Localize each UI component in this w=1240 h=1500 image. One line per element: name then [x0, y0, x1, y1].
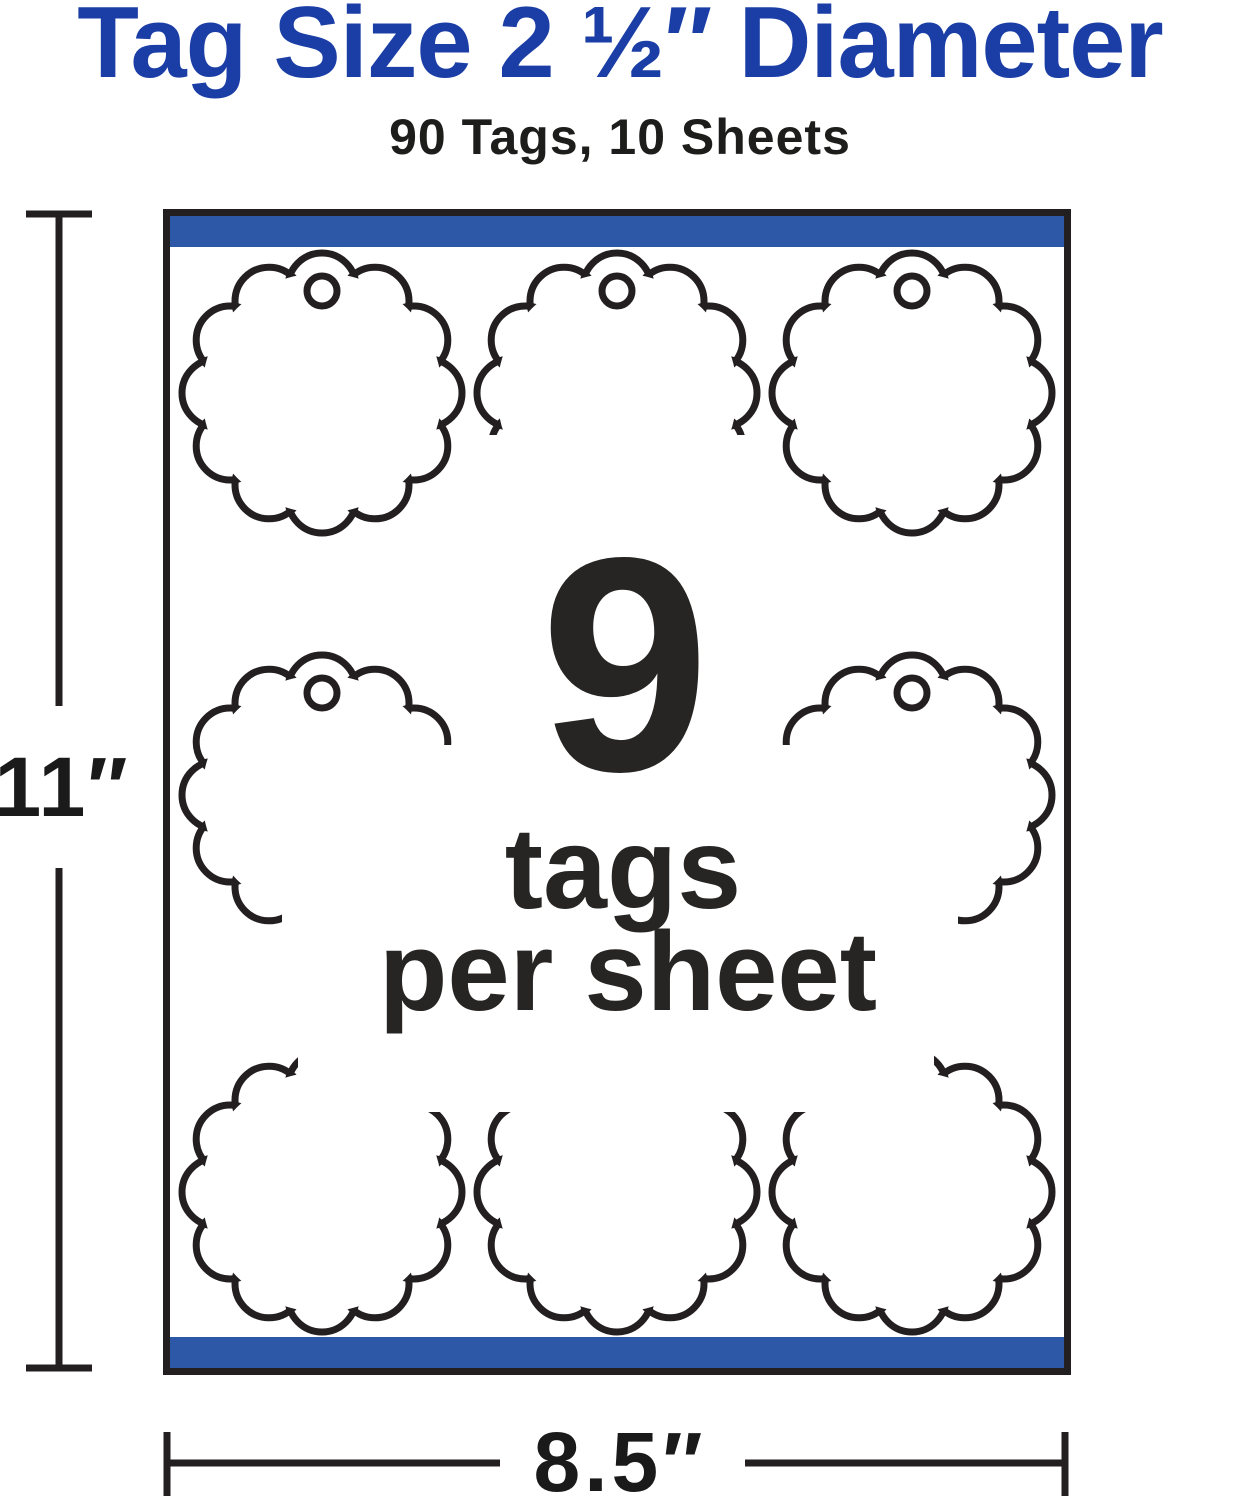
product-diagram: Tag Size 2 ½″ Diameter 90 Tags, 10 Sheet… — [0, 0, 1240, 1500]
width-dimension-label: 8.5″ — [533, 1415, 706, 1500]
height-dimension-label: 11″ — [0, 740, 130, 834]
bottom-accent-bar — [170, 1337, 1064, 1368]
tag-hole — [897, 276, 927, 306]
tag-hole — [602, 276, 632, 306]
tag-hole — [897, 678, 927, 708]
tag-hole — [307, 678, 337, 708]
sheet-diagram: 9 tags per sheet 11″ 8.5″ — [0, 0, 1240, 1500]
top-accent-bar — [170, 216, 1064, 247]
tags-count: 9 — [540, 494, 710, 835]
tag-hole — [307, 276, 337, 306]
per-sheet-label: per sheet — [379, 909, 877, 1034]
